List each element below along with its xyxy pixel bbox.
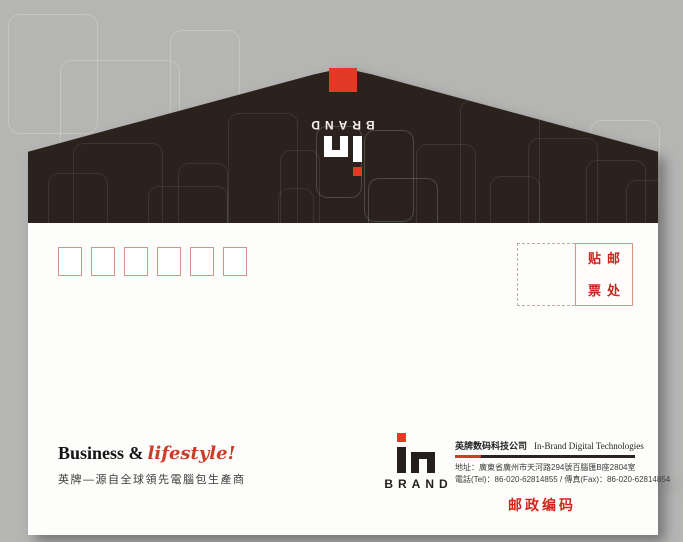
flap-red-tab xyxy=(329,68,357,92)
postal-code-box xyxy=(91,247,115,276)
postal-code-box xyxy=(223,247,247,276)
stamp-char: 贴 xyxy=(588,252,601,265)
postal-code-box xyxy=(157,247,181,276)
company-address: 地址：廣東省廣州市天河路294號百腦匯B座2804室 xyxy=(455,462,635,474)
company-divider-rule xyxy=(455,455,635,458)
tagline-lifestyle: lifestyle! xyxy=(148,443,236,464)
flap-brand-logo-inverted: BRAND xyxy=(311,118,375,176)
stamp-char: 处 xyxy=(607,284,620,297)
postal-code-box xyxy=(124,247,148,276)
postal-code-box xyxy=(190,247,214,276)
company-name: 英牌数码科技公司 In-Brand Digital Technologies xyxy=(455,439,635,452)
company-name-cn: 英牌数码科技公司 xyxy=(455,439,527,452)
tagline-english: Business &lifestyle! xyxy=(58,443,246,464)
postal-code-label: 邮政编码 xyxy=(508,495,576,515)
logo-red-dot xyxy=(353,167,362,176)
in-monogram-icon xyxy=(324,136,362,176)
stamp-char: 票 xyxy=(588,284,601,297)
envelope: BRAND 贴 邮 票 处 Business &lifestyle! 英牌—源自… xyxy=(28,68,658,535)
flap-brand-wordmark: BRAND xyxy=(306,118,379,132)
company-info-block: 英牌数码科技公司 In-Brand Digital Technologies 地… xyxy=(455,439,635,487)
stamp-area: 贴 邮 票 处 xyxy=(517,243,633,306)
postal-code-box xyxy=(58,247,82,276)
postal-code-boxes xyxy=(58,247,247,276)
stamp-here-box: 贴 邮 票 处 xyxy=(575,243,633,306)
brand-logo: BRAND xyxy=(385,433,447,491)
logo-red-dot xyxy=(397,433,406,442)
brand-wordmark: BRAND xyxy=(379,477,452,491)
tagline-block: Business &lifestyle! 英牌—源自全球領先電腦包生產商 xyxy=(58,443,246,487)
envelope-body: 贴 邮 票 处 Business &lifestyle! 英牌—源自全球領先電腦… xyxy=(28,223,658,535)
company-name-en: In-Brand Digital Technologies xyxy=(534,441,644,451)
stamp-char: 邮 xyxy=(607,252,620,265)
stamp-placement-box xyxy=(517,243,575,306)
company-phone-fax: 電話(Tel)：86-020-62814855 / 傳真(Fax)：86-020… xyxy=(455,474,635,486)
tagline-chinese: 英牌—源自全球領先電腦包生產商 xyxy=(58,471,246,487)
in-monogram-icon xyxy=(397,433,435,473)
envelope-mockup-stage: BRAND 贴 邮 票 处 Business &lifestyle! 英牌—源自… xyxy=(0,0,683,542)
